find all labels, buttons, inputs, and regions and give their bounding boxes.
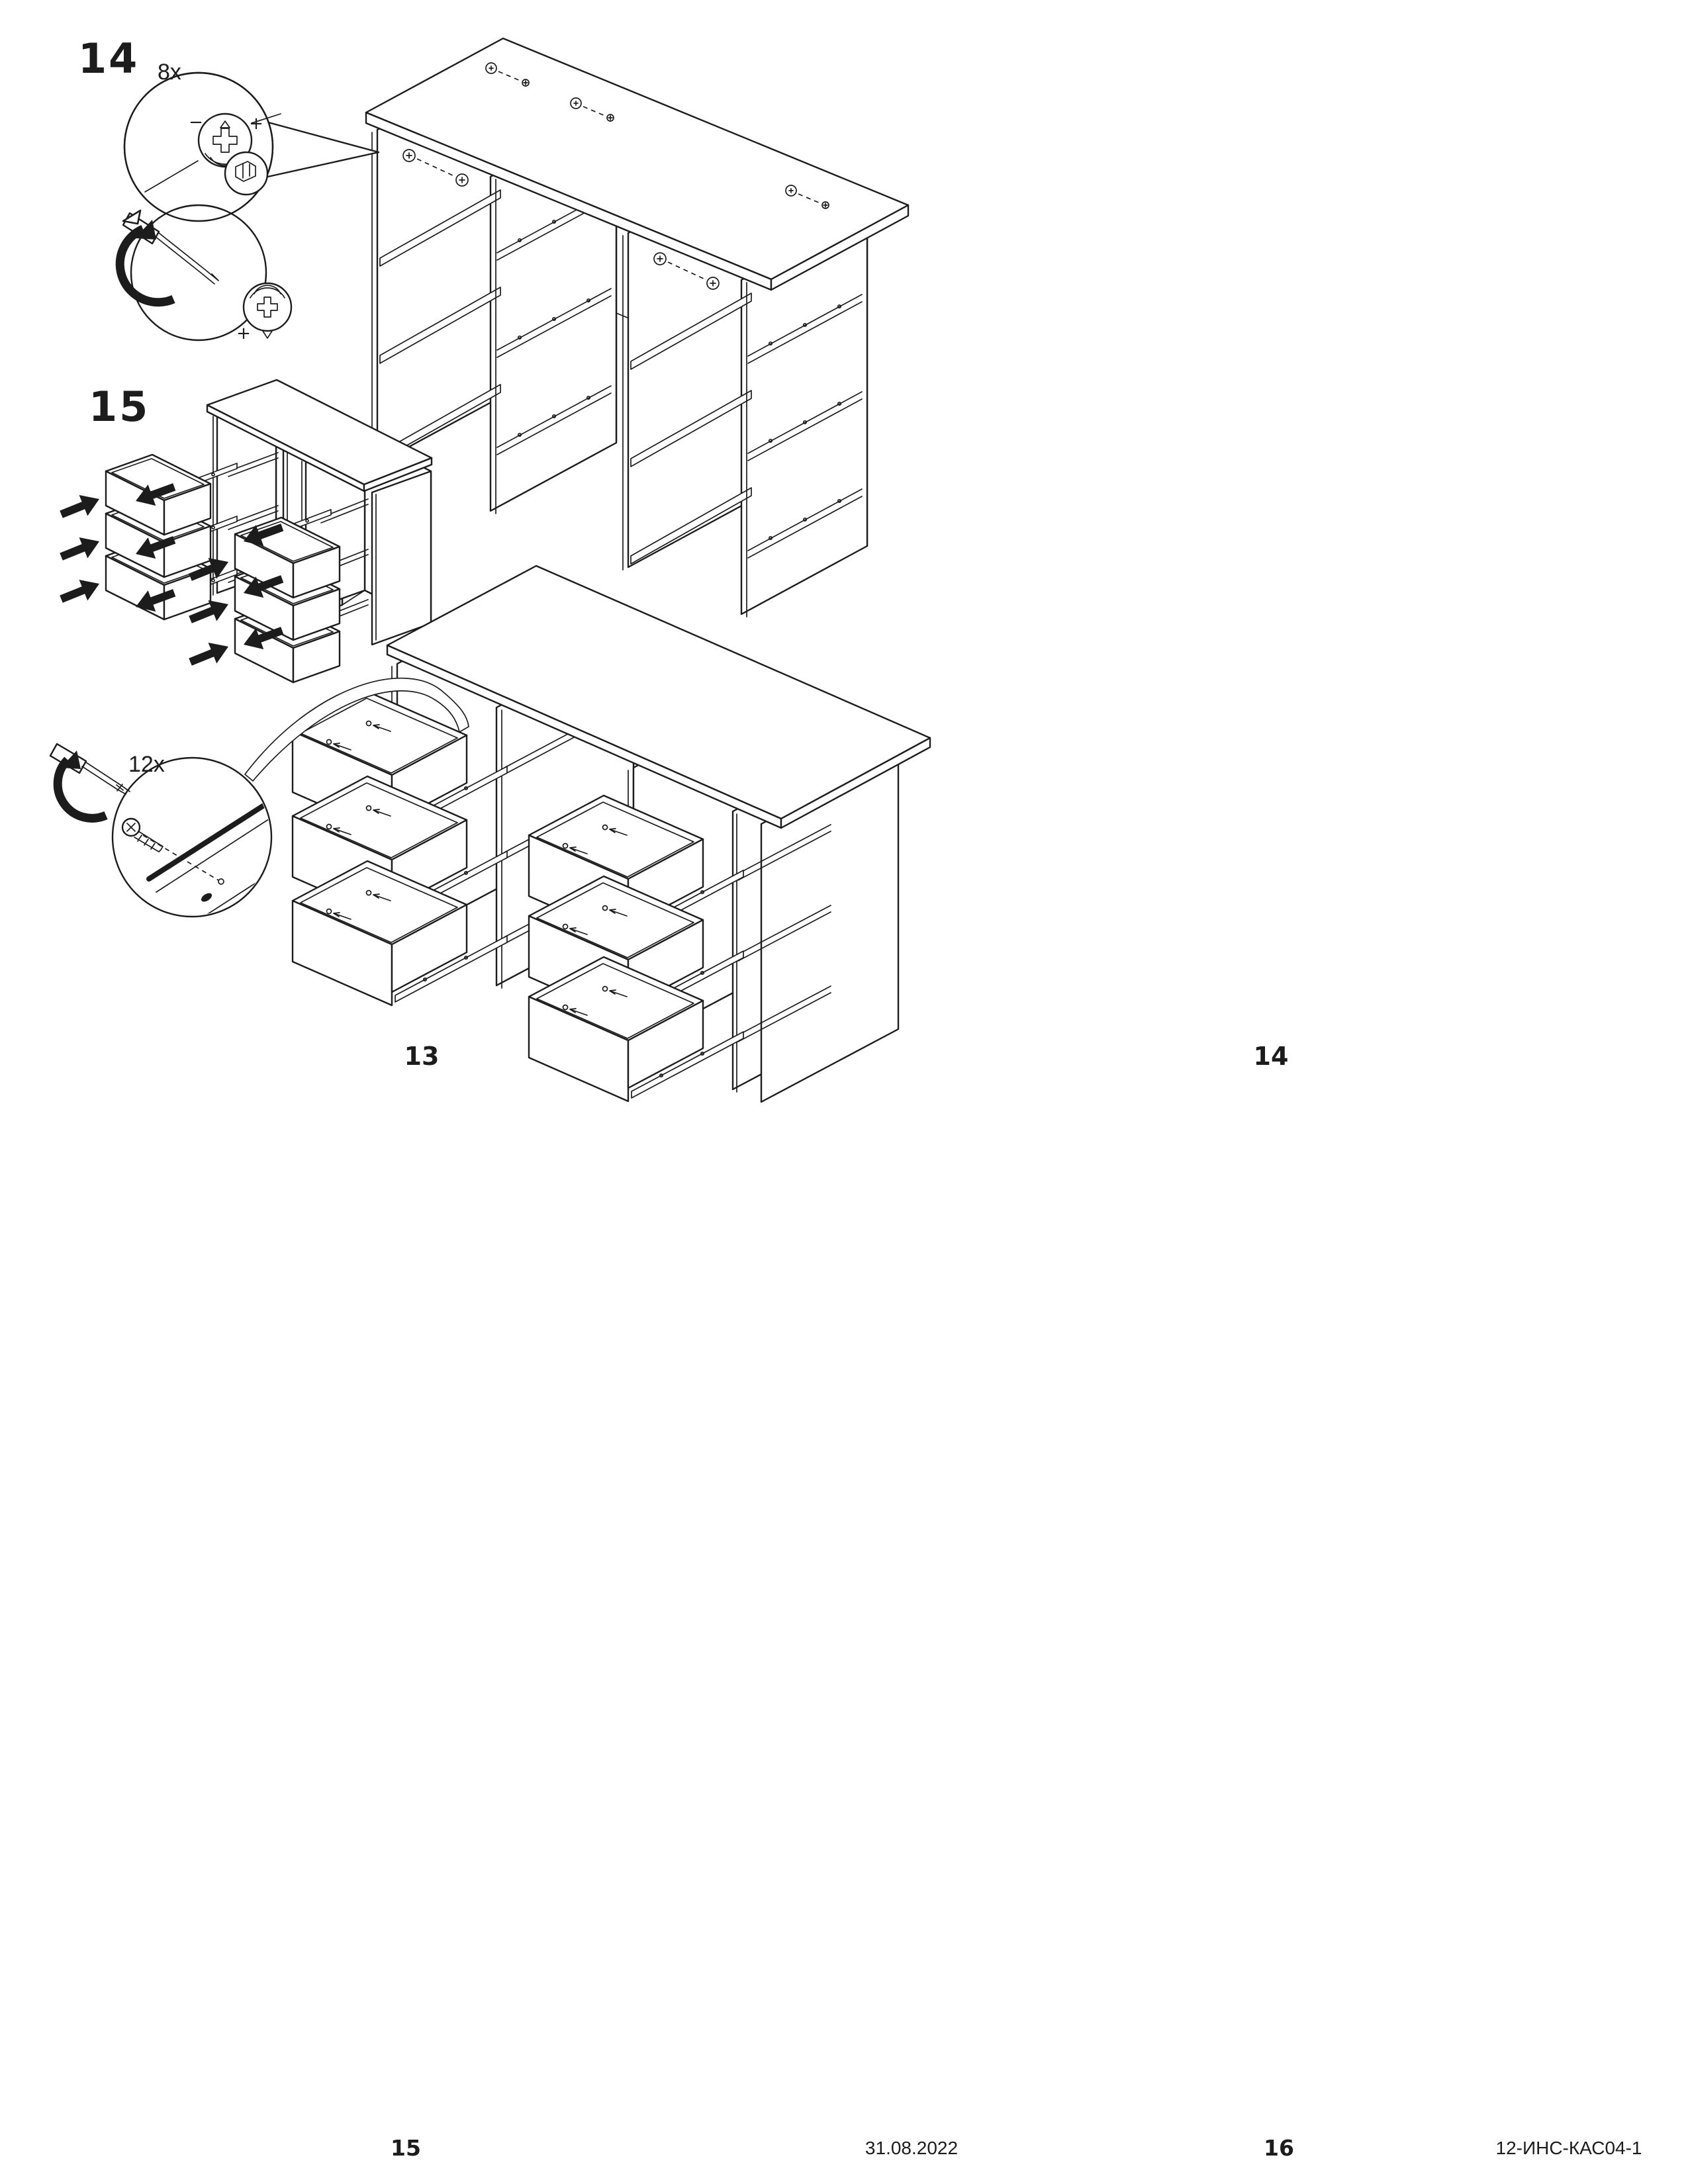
instruction-sheet: − + +	[0, 0, 1688, 2184]
footer-date: 31.08.2022	[842, 2138, 981, 2159]
cam-lock-marker	[456, 174, 468, 186]
cam-plus-mark: +	[249, 114, 263, 134]
step15-hardware-quantity: 12x	[128, 752, 165, 778]
page-number-14: 14	[1238, 1042, 1304, 1071]
instruction-line-art: − + +	[0, 0, 1688, 2184]
screw-callout-bubble	[50, 744, 302, 928]
cam-lock-marker	[654, 253, 666, 265]
step15-number: 15	[89, 383, 150, 431]
step14-hardware-quantity: 8x	[158, 60, 181, 85]
hardware-callout-bubble: − + +	[120, 73, 379, 343]
step14-number: 14	[78, 34, 139, 83]
cam-plus-mark: +	[236, 324, 251, 343]
footer-document-code: 12-ИНС-КАС04-1	[1460, 2138, 1678, 2159]
step15-assembled-desk-illustration	[245, 566, 930, 1102]
step14-desk-illustration	[366, 38, 908, 617]
cam-lock-marker	[403, 150, 415, 161]
page-number-13: 13	[389, 1042, 455, 1071]
page-number-16: 16	[1246, 2135, 1312, 2161]
cam-minus-mark: −	[189, 113, 203, 132]
cam-lock-marker	[707, 277, 719, 289]
page-number-15: 15	[373, 2135, 439, 2161]
cam-lock-side-icon	[225, 152, 267, 195]
